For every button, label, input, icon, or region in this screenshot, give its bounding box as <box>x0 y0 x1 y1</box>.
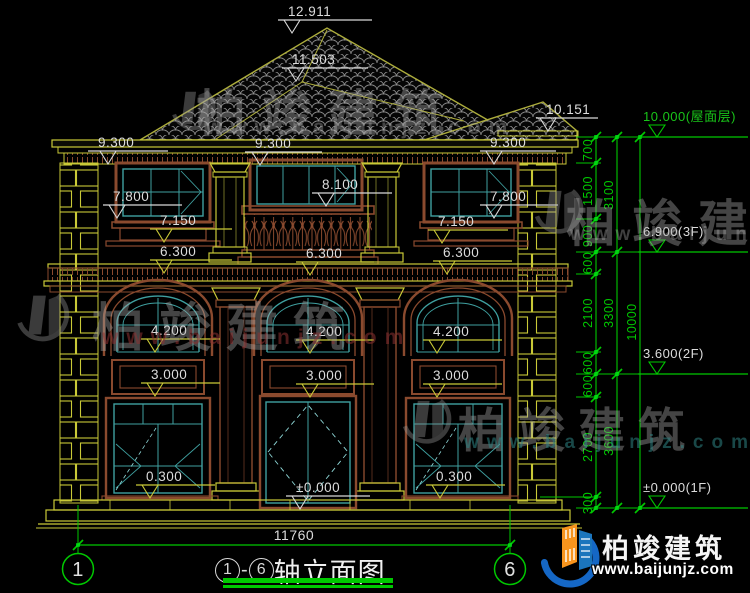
svg-text:12.911: 12.911 <box>288 4 331 19</box>
title-underline-thin <box>223 585 393 588</box>
svg-text:6.300: 6.300 <box>306 246 342 261</box>
elevation-marker: ±0.000 <box>286 480 370 509</box>
roof <box>140 28 578 140</box>
title-underline <box>223 578 393 583</box>
svg-text:2700: 2700 <box>581 432 595 462</box>
svg-text:0.300: 0.300 <box>146 469 182 484</box>
svg-text:6.300: 6.300 <box>443 245 479 260</box>
level-marker: 10.000(屋面层) <box>638 109 748 137</box>
axis-bubble: 6 <box>495 554 526 585</box>
svg-text:3600: 3600 <box>602 426 616 456</box>
svg-text:3.000: 3.000 <box>151 367 187 382</box>
cad-canvas: 12.91111.50310.1519.3009.3009.3008.1007.… <box>0 0 750 593</box>
svg-text:10.151: 10.151 <box>546 102 590 117</box>
elevation-drawing: 12.91111.50310.1519.3009.3009.3008.1007.… <box>0 0 750 593</box>
svg-text:9.300: 9.300 <box>490 135 526 150</box>
elevation-marker: 8.100 <box>312 177 392 206</box>
svg-text:3100: 3100 <box>602 180 616 210</box>
svg-text:7.800: 7.800 <box>113 189 149 204</box>
svg-text:6.900(3F): 6.900(3F) <box>643 224 704 239</box>
svg-text:3.600(2F): 3.600(2F) <box>643 346 704 361</box>
elevation-marker: 7.150 <box>150 213 232 242</box>
svg-text:900: 900 <box>581 225 595 247</box>
dimension-chain-column: 700150090060021006006002700300 <box>581 132 601 514</box>
svg-text:300: 300 <box>581 492 595 514</box>
svg-text:6.300: 6.300 <box>160 244 196 259</box>
svg-text:11.503: 11.503 <box>292 52 335 67</box>
elevation-marker: 3.000 <box>141 367 220 396</box>
svg-text:700: 700 <box>581 139 595 161</box>
svg-text:11760: 11760 <box>274 527 314 543</box>
svg-text:9.300: 9.300 <box>98 135 134 150</box>
svg-text:0.300: 0.300 <box>436 469 472 484</box>
svg-text:±0.000(1F): ±0.000(1F) <box>643 480 712 495</box>
brand-url: www.baijunjz.com <box>592 561 734 579</box>
dimension-chain-column: 10000 <box>625 132 645 513</box>
svg-text:4.200: 4.200 <box>306 324 342 339</box>
svg-text:1500: 1500 <box>581 176 595 206</box>
svg-text:7.150: 7.150 <box>160 213 196 228</box>
base-steps <box>36 500 582 528</box>
svg-text:10000: 10000 <box>625 303 639 340</box>
column <box>209 163 251 262</box>
elevation-marker: 3.000 <box>296 368 374 397</box>
svg-text:8.100: 8.100 <box>322 177 358 192</box>
svg-text:7.150: 7.150 <box>438 214 474 229</box>
svg-text:4.200: 4.200 <box>151 323 187 338</box>
level-marker: 3.600(2F) <box>638 346 748 374</box>
svg-text:9.300: 9.300 <box>255 136 291 151</box>
svg-text:10.000(屋面层): 10.000(屋面层) <box>643 109 736 124</box>
svg-text:6: 6 <box>504 559 516 581</box>
svg-text:1: 1 <box>72 559 84 581</box>
brand-logo: 柏竣建筑 www.baijunjz.com <box>534 518 750 593</box>
elevation-marker: 4.200 <box>141 323 220 352</box>
svg-text:±0.000: ±0.000 <box>296 480 340 495</box>
svg-text:600: 600 <box>581 252 595 274</box>
drawing-title: 1-6轴立面图 <box>215 551 386 590</box>
svg-text:7.800: 7.800 <box>490 189 526 204</box>
level-marker: 6.900(3F) <box>638 224 748 252</box>
svg-text:600: 600 <box>581 352 595 374</box>
svg-text:3.000: 3.000 <box>306 368 342 383</box>
axis-bubble: 1 <box>63 554 94 585</box>
level-marker: ±0.000(1F) <box>638 480 748 508</box>
brand-logo-icon <box>534 518 604 590</box>
svg-text:3.000: 3.000 <box>433 368 469 383</box>
elevation-marker: 4.200 <box>423 324 502 353</box>
svg-text:2100: 2100 <box>581 298 595 328</box>
elevation-marker: 3.000 <box>423 368 502 397</box>
svg-text:4.200: 4.200 <box>433 324 469 339</box>
svg-text:3300: 3300 <box>602 298 616 328</box>
svg-text:600: 600 <box>581 375 595 397</box>
dimension-chain-column: 310033003600 <box>602 132 622 513</box>
